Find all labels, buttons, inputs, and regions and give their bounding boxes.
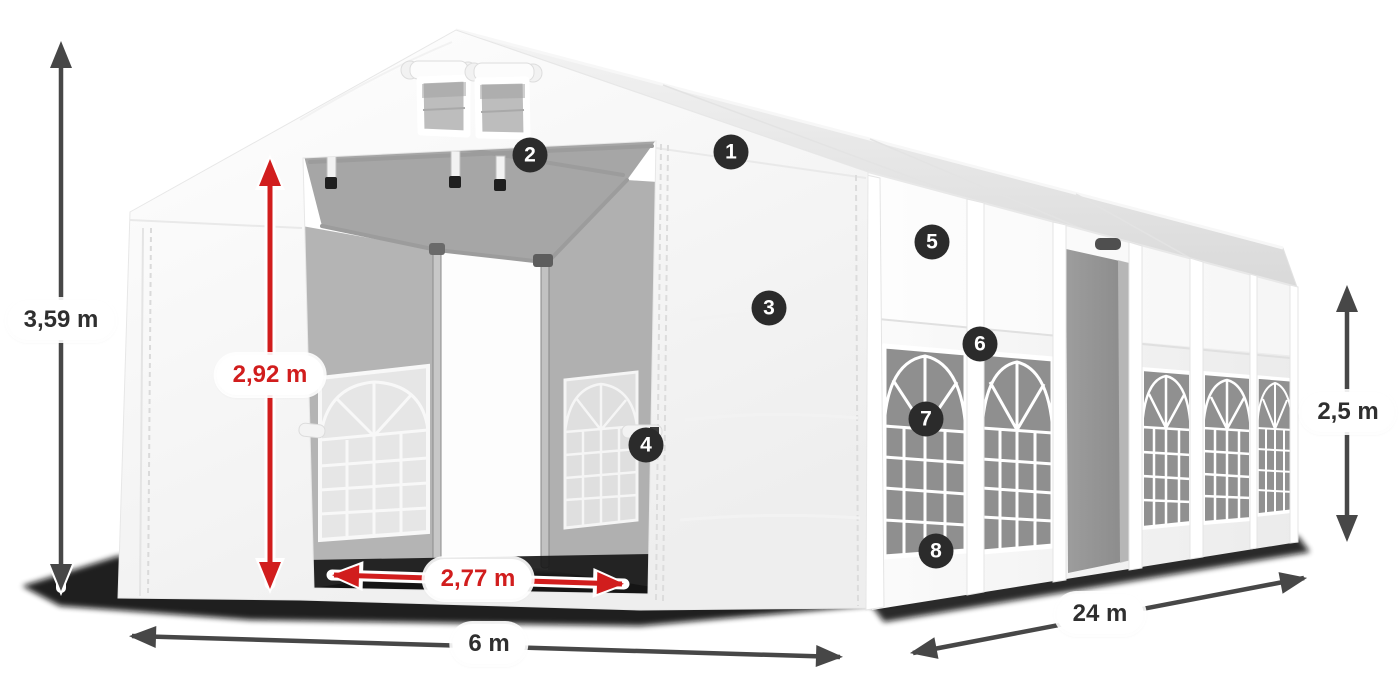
hotspot-badge-5[interactable]: 5 [915, 225, 950, 260]
interior-window-right [565, 372, 637, 528]
interior-through-opening [441, 252, 541, 568]
side-wall-opening [1066, 238, 1131, 573]
side-window-3 [1142, 369, 1191, 528]
side-window-5 [1257, 377, 1293, 515]
hotspot-badge-2[interactable]: 2 [513, 138, 548, 173]
hotspot-badge-6[interactable]: 6 [963, 327, 998, 362]
side-window-4 [1203, 373, 1251, 523]
dimension-label-entrance-height: 2,92 m [217, 355, 324, 395]
hotspot-badge-8[interactable]: 8 [919, 534, 954, 569]
side-window-2 [982, 353, 1053, 552]
interior-window-left [320, 366, 428, 540]
tent-interior [302, 133, 658, 596]
hotspot-badge-3[interactable]: 3 [752, 291, 787, 326]
dimension-label-total-height: 3,59 m [8, 300, 115, 340]
side-window-1 [884, 346, 966, 557]
hotspot-badge-4[interactable]: 4 [629, 428, 664, 463]
tent-dimensions-diagram: 3,59 m 2,92 m 2,77 m 6 m 24 m 2,5 m 1 2 … [0, 0, 1400, 700]
dimension-label-entrance-width: 2,77 m [425, 559, 532, 599]
dimension-label-side-height: 2,5 m [1301, 392, 1394, 432]
dimension-label-front-width: 6 m [452, 624, 525, 664]
dimension-label-side-length: 24 m [1057, 594, 1144, 634]
hotspot-badge-1[interactable]: 1 [714, 135, 749, 170]
hotspot-badge-7[interactable]: 7 [909, 402, 944, 437]
tent-illustration [0, 0, 1400, 700]
